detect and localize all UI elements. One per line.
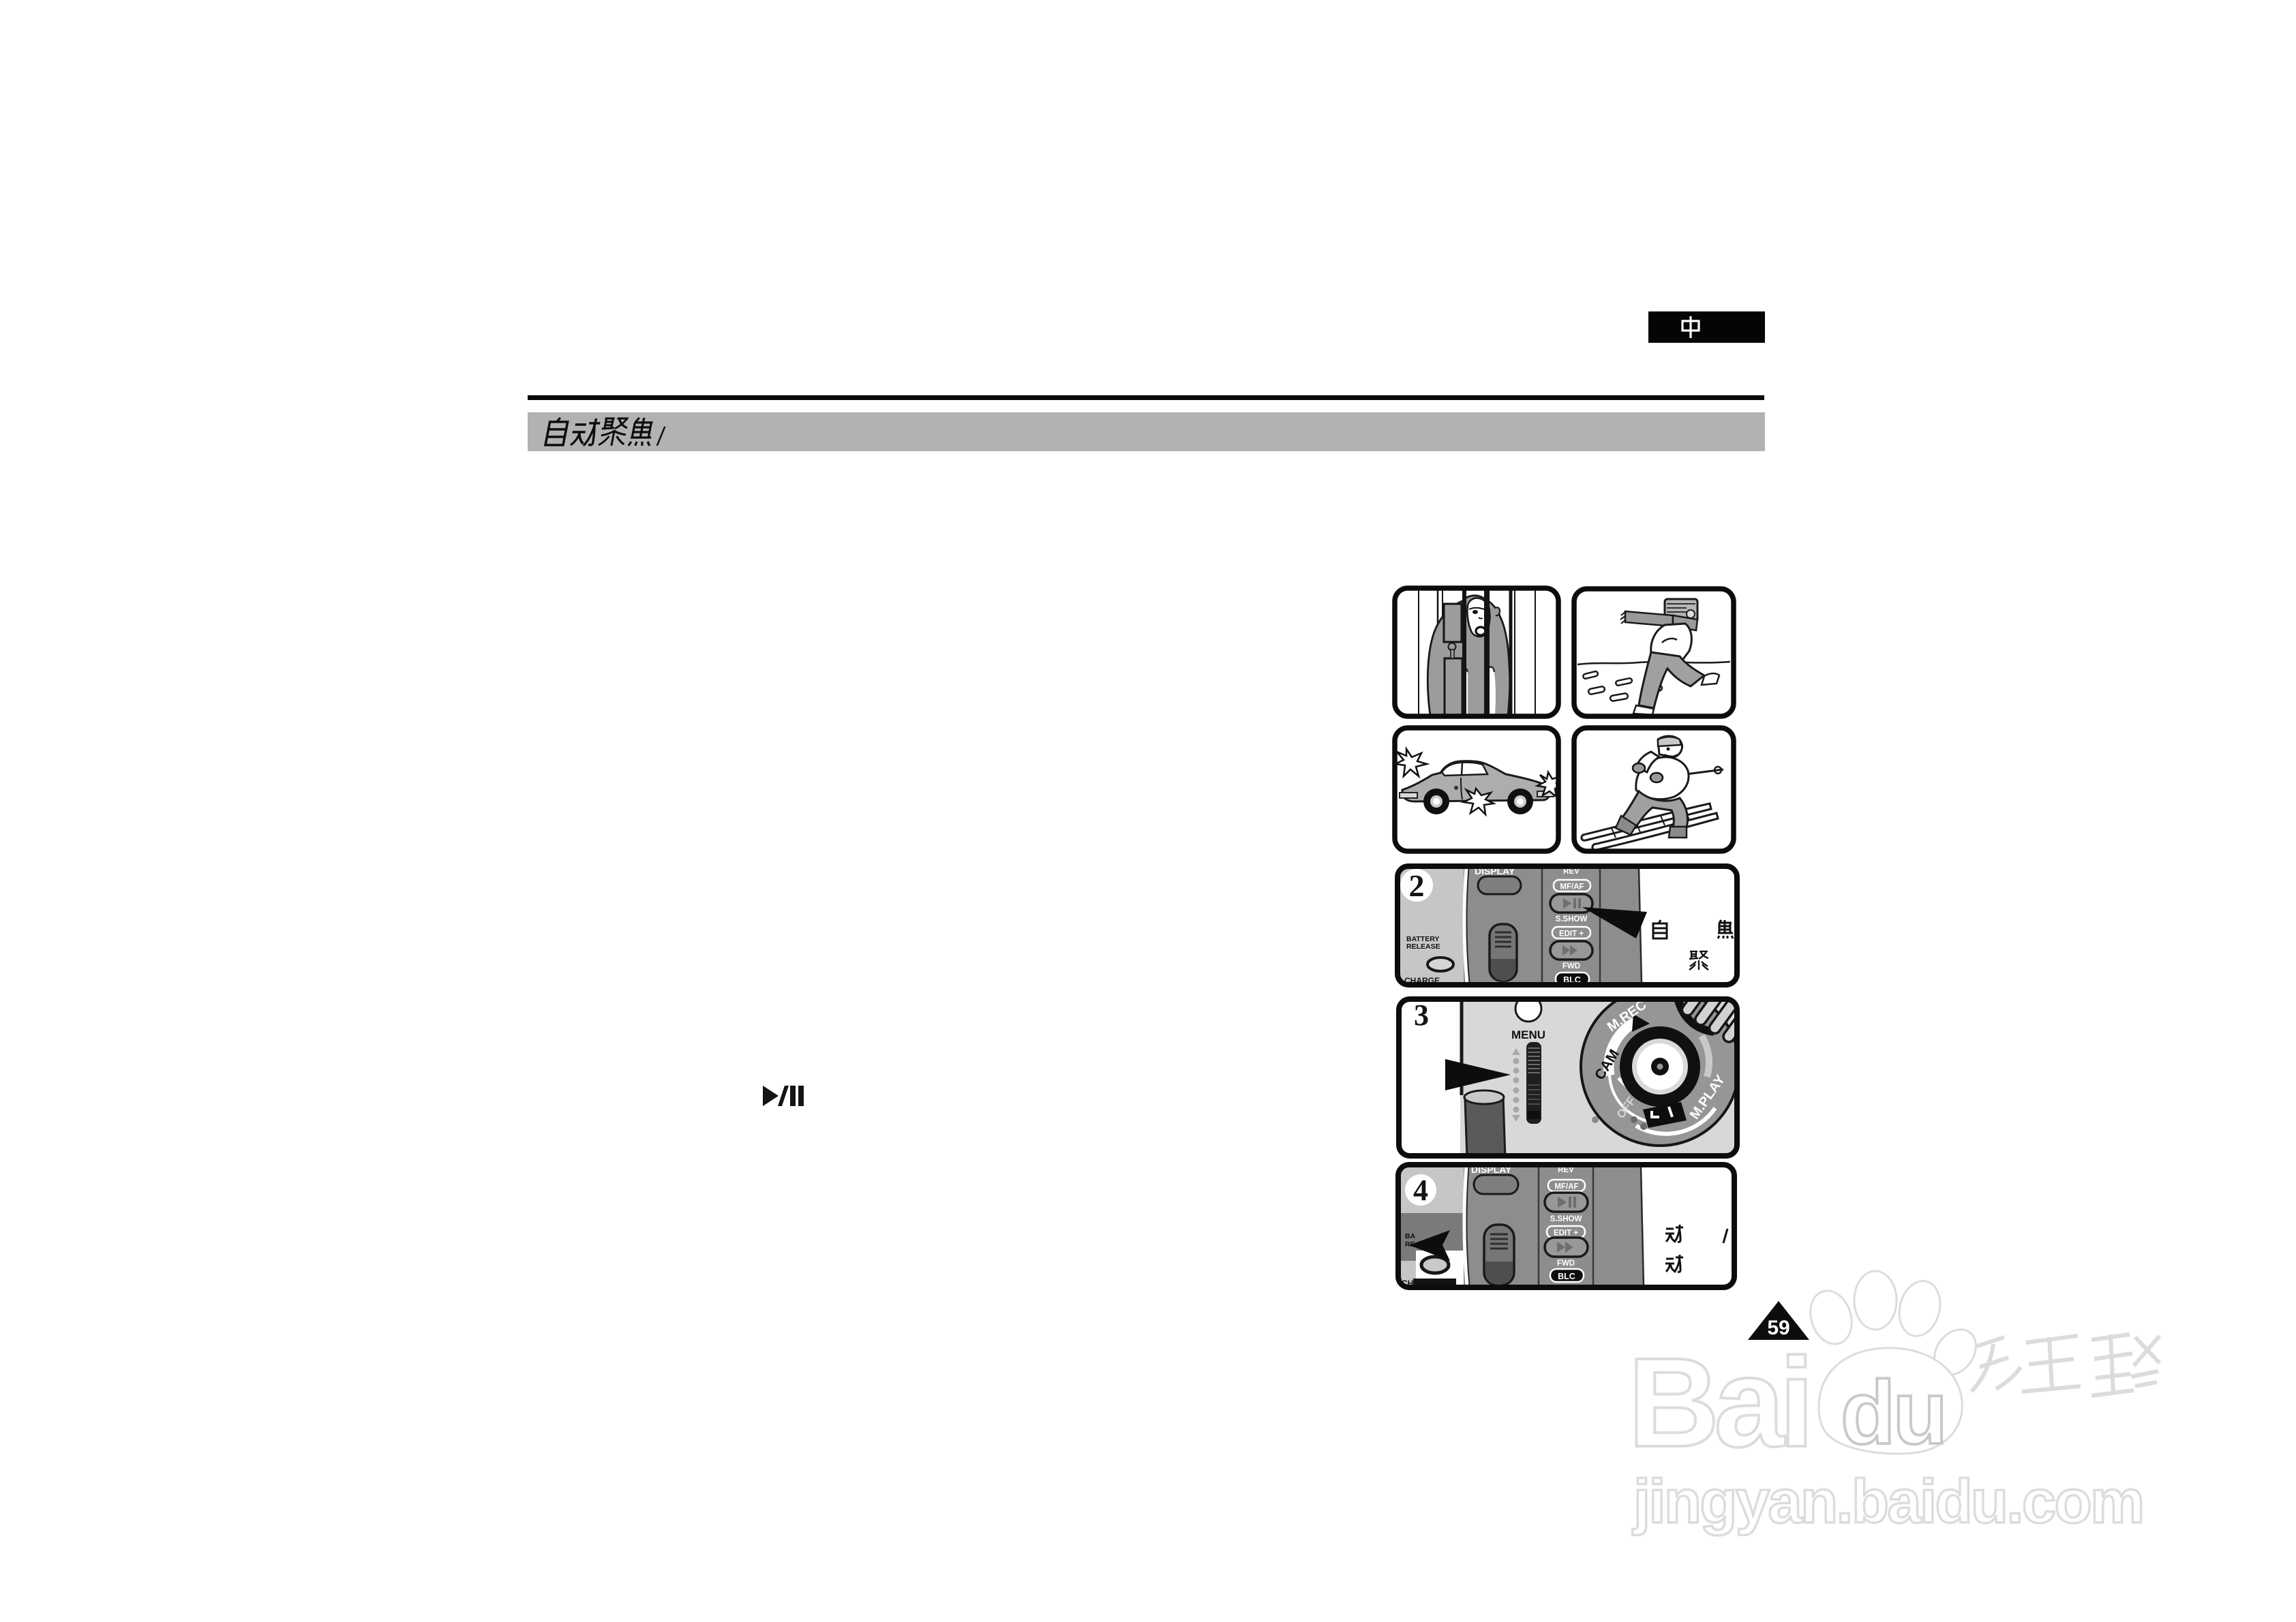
- svg-text:MF/AF: MF/AF: [1554, 1183, 1578, 1191]
- svg-text:BLC: BLC: [1558, 1272, 1575, 1281]
- svg-text:S.SHOW: S.SHOW: [1550, 1215, 1582, 1223]
- svg-text:MENU: MENU: [1511, 1028, 1545, 1041]
- svg-text:RELEASE: RELEASE: [1406, 943, 1440, 951]
- svg-text:3: 3: [1414, 998, 1429, 1032]
- svg-text:EDIT +: EDIT +: [1554, 1229, 1578, 1238]
- svg-text:FWD: FWD: [1557, 1259, 1575, 1268]
- svg-text:2: 2: [1409, 868, 1425, 903]
- svg-text:Bai: Bai: [1628, 1332, 1809, 1473]
- svg-text:FWD: FWD: [1562, 962, 1580, 970]
- svg-text:MF/AF: MF/AF: [1560, 883, 1584, 891]
- svg-text:4: 4: [1413, 1174, 1428, 1207]
- svg-text:BA: BA: [1405, 1232, 1416, 1240]
- svg-text:du: du: [1841, 1362, 1945, 1463]
- svg-text:EDIT +: EDIT +: [1559, 930, 1584, 938]
- svg-text:jingyan.baidu.com: jingyan.baidu.com: [1632, 1468, 2143, 1536]
- svg-text:S.SHOW: S.SHOW: [1556, 915, 1588, 923]
